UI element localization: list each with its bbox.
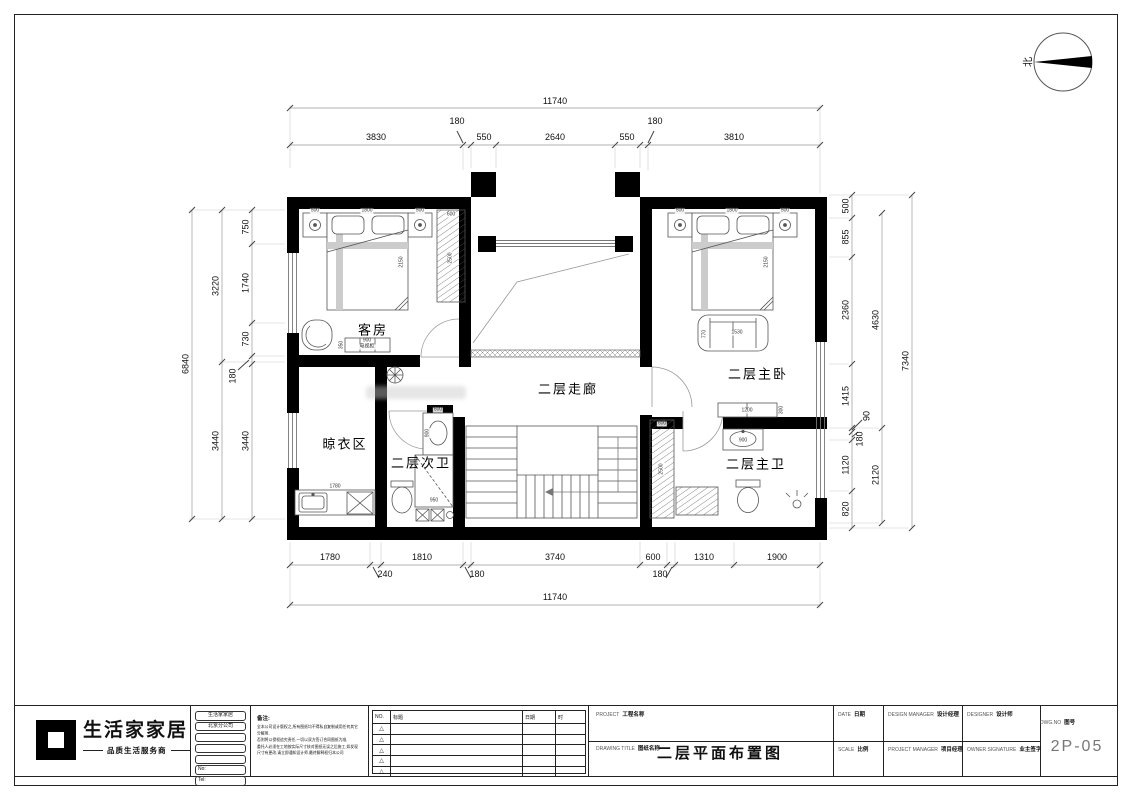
furniture-dim: 2150 — [400, 255, 405, 268]
dim-label: 550 — [476, 133, 491, 142]
notes: 备注: 全本公司设计版权之,所有图纸均不得私自复制或用任何其它分解用, 否则将以… — [257, 714, 365, 757]
secondary-toilet — [391, 481, 413, 487]
dim-label: 180 — [647, 117, 662, 126]
note-line: 尺寸有更改,请立即通知设计师,最终解释权归本公司 — [257, 750, 361, 756]
dim-label: 90 — [863, 411, 872, 421]
north-arrow — [1034, 33, 1092, 91]
dim-label: 1415 — [842, 386, 851, 406]
revision-mark: △ — [373, 724, 391, 734]
dim-label: 6840 — [182, 354, 191, 374]
dim-label: 4630 — [872, 310, 881, 330]
notes-title: 备注: — [257, 714, 365, 722]
room-label-bath1: 二层主卫 — [726, 454, 786, 473]
master-room-furniture — [668, 213, 797, 417]
revision-mark: △ — [373, 767, 391, 777]
rev-header: 时 — [556, 711, 585, 723]
floor-drain — [447, 512, 454, 519]
revision-mark: △ — [373, 745, 391, 755]
dim-label: 180 — [856, 431, 865, 446]
dim-label: 3830 — [366, 133, 386, 142]
furniture-dim: 600 — [433, 408, 443, 413]
dim-label: 11740 — [543, 97, 567, 106]
drawing-sheet: 11740 3830 180 550 2640 550 180 3810 178… — [0, 0, 1132, 800]
furniture-dim: 1800 — [360, 209, 373, 214]
owner-signature-label: OWNER SIGNATURE业主签字 — [967, 745, 1041, 753]
furniture-dim: 1200 — [740, 409, 753, 414]
dim-label: 500 — [842, 198, 851, 213]
room-label-master: 二层主卧 — [728, 364, 788, 383]
scale-label: SCALE比例 — [838, 745, 868, 753]
furniture-dim: 900 — [426, 428, 431, 438]
master-closet-2 — [676, 487, 718, 515]
furniture-dim: 300 — [780, 405, 785, 415]
furniture-dim: 2500 — [660, 462, 665, 475]
room-label-drying: 晾衣区 — [322, 434, 367, 453]
master-toilet — [736, 480, 760, 487]
staircase — [466, 426, 637, 518]
void-line — [473, 254, 629, 343]
shower-head — [793, 500, 801, 508]
stair-arrow — [545, 488, 553, 496]
dim-label: 1810 — [412, 553, 432, 562]
dim-label: 180 — [449, 117, 464, 126]
company-box — [195, 744, 246, 754]
dim-label: 820 — [842, 501, 851, 516]
dim-label: 1780 — [320, 553, 340, 562]
company-box — [195, 733, 246, 743]
dim-label: 2360 — [842, 300, 851, 320]
date-label: DATE日期 — [838, 710, 865, 718]
dim-label: 2120 — [872, 465, 881, 485]
dim-label: 7340 — [902, 351, 911, 371]
revision-mark: △ — [373, 756, 391, 766]
drawing-title: 二层平面布置图 — [620, 742, 820, 763]
revision-mark: △ — [373, 735, 391, 745]
furniture-dim: 600 — [446, 213, 456, 218]
furniture-dim: 2500 — [449, 251, 454, 264]
company-box: 北京分公司 — [195, 722, 246, 732]
logo-icon — [36, 720, 76, 760]
project-manager-label: PROJECT MANAGER项目经理 — [888, 745, 963, 753]
dim-label: 240 — [377, 570, 392, 579]
dim-label: 3220 — [212, 276, 221, 296]
dim-label: 730 — [242, 331, 251, 346]
dim-label: 3440 — [212, 431, 221, 451]
company-box: 生活家家居 — [195, 711, 246, 721]
dim-label: 1740 — [242, 273, 251, 293]
dim-label: 1900 — [767, 553, 787, 562]
room-label-bath2: 二层次卫 — [391, 453, 451, 472]
watermark-smudge — [366, 386, 466, 399]
dim-label: 600 — [645, 553, 660, 562]
floor-plan-drawing — [0, 0, 1132, 800]
revision-table: NO. 标题 日期 时 △ △ △ △ △ — [372, 710, 586, 774]
dim-label: 550 — [619, 133, 634, 142]
dim-label: 750 — [242, 219, 251, 234]
dim-label: 11740 — [543, 593, 567, 602]
dim-label: 180 — [469, 570, 484, 579]
guest-chair — [302, 320, 332, 350]
furniture-dim: 500 — [780, 209, 790, 214]
note-line: 全本公司设计版权之,所有图纸均不得私自复制或用任何其它分解用, — [257, 724, 361, 737]
furniture-dim: 1800 — [725, 209, 738, 214]
furniture-dim: 500 — [415, 209, 425, 214]
rev-header: 日期 — [523, 711, 556, 723]
furniture-dim: 电视柜 — [358, 345, 375, 350]
room-label-guest: 客房 — [358, 320, 388, 339]
room-label-corridor: 二层走廊 — [538, 379, 598, 398]
furniture-dim: 600 — [657, 422, 667, 427]
rev-header: NO. — [373, 711, 391, 723]
railing — [471, 350, 640, 357]
furniture-dim: 350 — [340, 340, 345, 350]
furniture-dim: 500 — [675, 209, 685, 214]
project-label: PROJECT工程名称 — [596, 710, 644, 718]
dim-label: 2640 — [545, 133, 565, 142]
dwg-no: 2P-05 — [1042, 738, 1112, 756]
furniture-dim: 950 — [429, 499, 439, 504]
company-box: No: — [195, 765, 246, 775]
company-name: 生活家家居 — [83, 720, 191, 743]
company-tagline: 品质生活服务商 — [107, 745, 167, 756]
dim-label: 3740 — [545, 553, 565, 562]
company-box: Tel: — [195, 776, 246, 786]
dim-label: 855 — [842, 229, 851, 244]
furniture-dim: 1780 — [328, 485, 341, 490]
north-label: 北 — [1020, 57, 1035, 67]
designer-label: DESIGNER设计师 — [967, 710, 1013, 718]
furniture-dim: 770 — [703, 329, 708, 339]
note-line: 否则将以侵权追究责任,一切以双方签订合同图纸为准, — [257, 737, 361, 743]
dim-label: 180 — [229, 368, 238, 383]
dwg-no-label: DWG.NO图号 — [1040, 718, 1075, 726]
design-manager-label: DESIGN MANAGER设计经理 — [888, 710, 959, 718]
furniture-dim: 900 — [738, 439, 748, 444]
furniture-dim: 2150 — [765, 255, 770, 268]
company-info-boxes: 生活家家居 北京分公司 No: Tel: — [195, 711, 246, 787]
company-logo: 生活家家居 品质生活服务商 — [36, 720, 191, 760]
dim-label: 1310 — [694, 553, 714, 562]
dim-label: 3810 — [724, 133, 744, 142]
furniture-dim: 1530 — [730, 331, 743, 336]
furniture-dim: 500 — [310, 209, 320, 214]
dim-label: 1120 — [842, 455, 851, 474]
dim-label: 180 — [652, 570, 667, 579]
dim-label: 3440 — [242, 431, 251, 451]
rev-header: 标题 — [391, 711, 523, 723]
company-box — [195, 755, 246, 765]
